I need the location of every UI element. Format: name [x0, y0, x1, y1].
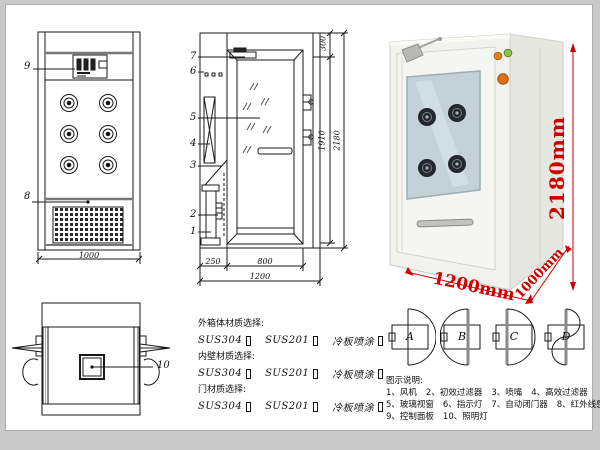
material-option-label: SUS201	[265, 335, 309, 346]
part-label-10: 10	[157, 360, 170, 371]
material-section-3-options: SUS304 SUS201 冷板喷涂	[198, 398, 383, 415]
material-checkbox[interactable]	[313, 336, 318, 346]
material-checkbox[interactable]	[246, 336, 251, 346]
legend-item: 6、指示灯	[443, 399, 482, 411]
part-label-7: 7	[190, 51, 196, 62]
door-option-a[interactable]: A	[388, 306, 436, 368]
material-section-2-options: SUS304 SUS201 冷板喷涂	[198, 365, 383, 382]
door-option-a-label: A	[400, 330, 420, 343]
door-option-d-label: D	[556, 330, 576, 343]
material-section-1-options: SUS304 SUS201 冷板喷涂	[198, 332, 383, 349]
front-width-dim: 1000	[69, 251, 109, 260]
material-section-2-title: 内壁材质选择:	[198, 349, 383, 365]
legend-item: 10、照明灯	[443, 411, 488, 423]
legend-item: 3、喷嘴	[491, 387, 522, 399]
door-option-c[interactable]: C	[492, 306, 540, 368]
legend-item: 4、高效过滤器	[531, 387, 587, 399]
part-label-3: 3	[190, 160, 196, 171]
material-option-label: 冷板喷涂	[332, 366, 374, 381]
door-option-b[interactable]: B	[440, 306, 488, 368]
material-checkbox[interactable]	[378, 369, 383, 379]
air-shower-datasheet: 9 8 1000	[0, 0, 600, 450]
side-view-drawing	[185, 28, 355, 290]
side-dim-2180: 2180	[333, 126, 342, 156]
legend-row-1: 1、风机 2、初效过滤器 3、喷嘴 4、高效过滤器	[386, 387, 591, 399]
material-checkbox[interactable]	[313, 402, 318, 412]
material-option-label: SUS201	[265, 368, 309, 379]
top-view-drawing	[5, 300, 180, 420]
part-label-4: 4	[190, 138, 196, 149]
part-label-6: 6	[190, 66, 196, 77]
material-section-1-title: 外箱体材质选择:	[198, 316, 383, 332]
material-checkbox[interactable]	[378, 402, 383, 412]
legend: 图示说明: 1、风机 2、初效过滤器 3、喷嘴 4、高效过滤器 5、玻璃视窗 6…	[386, 376, 591, 423]
material-option-label: 冷板喷涂	[332, 333, 374, 348]
door-option-b-label: B	[452, 330, 472, 343]
legend-title: 图示说明:	[386, 376, 591, 387]
legend-item: 7、自动闭门器	[491, 399, 547, 411]
side-dim-250: 250	[198, 257, 228, 266]
door-option-d[interactable]: D	[544, 306, 592, 368]
part-label-5: 5	[190, 112, 196, 123]
front-view-drawing	[20, 28, 150, 268]
legend-item: 9、控制面板	[386, 411, 434, 423]
material-checkbox[interactable]	[246, 402, 251, 412]
legend-item: 2、初效过滤器	[426, 387, 482, 399]
side-dim-1910: 1910	[318, 126, 327, 156]
material-checkbox[interactable]	[246, 369, 251, 379]
side-dim-300: 300	[319, 31, 328, 57]
door-option-c-label: C	[504, 330, 524, 343]
legend-row-2: 5、玻璃视窗 6、指示灯 7、自动闭门器 8、红外线感应器	[386, 399, 591, 411]
part-label-1: 1	[190, 226, 196, 237]
material-option-label: SUS304	[198, 401, 242, 412]
side-dim-800: 800	[240, 257, 290, 266]
legend-item: 8、红外线感应器	[557, 399, 600, 411]
material-option-label: SUS201	[265, 401, 309, 412]
material-option-label: 冷板喷涂	[332, 399, 374, 414]
part-label-2: 2	[190, 209, 196, 220]
part-label-9: 9	[24, 61, 30, 72]
material-section-3-title: 门材质选择:	[198, 382, 383, 398]
photo-height-dim: 2180mm	[545, 88, 569, 248]
material-checkbox[interactable]	[313, 369, 318, 379]
legend-item: 5、玻璃视窗	[386, 399, 434, 411]
material-checkbox[interactable]	[378, 336, 383, 346]
side-dim-1200: 1200	[235, 272, 285, 281]
legend-row-3: 9、控制面板 10、照明灯	[386, 411, 591, 423]
part-label-8: 8	[24, 191, 30, 202]
legend-item: 1、风机	[386, 387, 417, 399]
material-option-label: SUS304	[198, 368, 242, 379]
material-option-label: SUS304	[198, 335, 242, 346]
material-selection-form: 外箱体材质选择: SUS304 SUS201 冷板喷涂 内壁材质选择: SUS3…	[198, 316, 383, 415]
